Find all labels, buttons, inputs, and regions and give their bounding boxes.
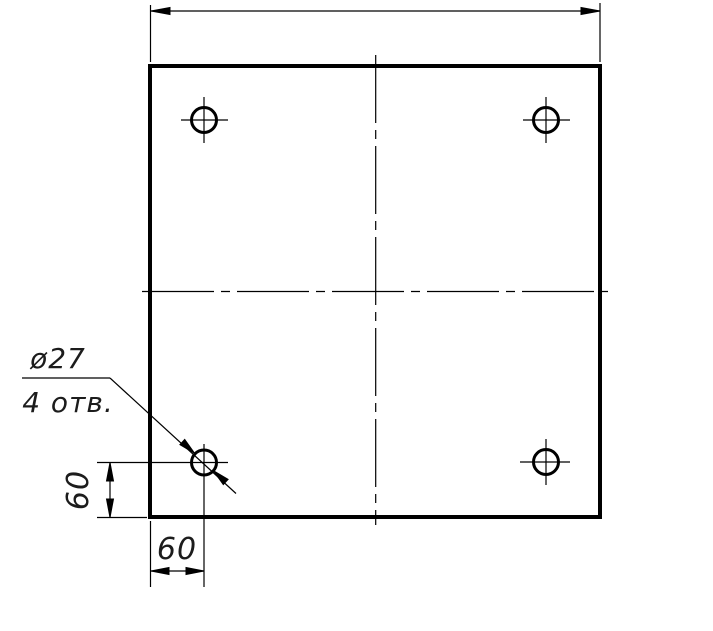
drawing-background (0, 0, 713, 631)
hole-callout-diameter-label: ø27 (29, 342, 86, 375)
plate-drawing-svg: ø27 4 отв. 60 60 (0, 0, 713, 631)
horizontal-dim-value-label: 60 (157, 532, 197, 567)
technical-drawing-canvas: ø27 4 отв. 60 60 (0, 0, 713, 631)
vertical-dim-value-label: 60 (61, 470, 96, 510)
hole-callout-count-label: 4 отв. (22, 386, 114, 419)
